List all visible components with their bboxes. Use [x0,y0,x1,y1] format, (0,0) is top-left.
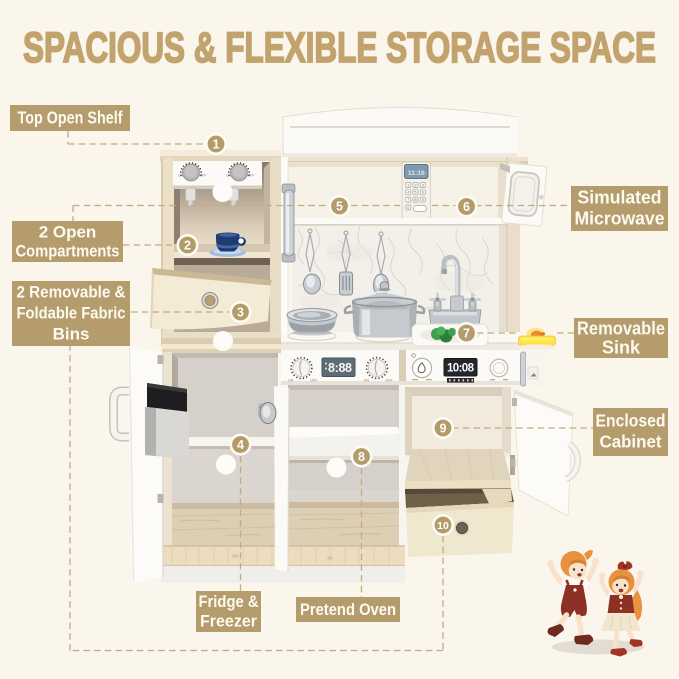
svg-text:SPACIOUS & FLEXIBLE STORAGE SP: SPACIOUS & FLEXIBLE STORAGE SPACE [23,24,656,72]
svg-text:Top Open Shelf: Top Open Shelf [18,108,123,128]
svg-text:8:88: 8:88 [328,361,352,375]
svg-text:6: 6 [463,200,470,214]
svg-text:4: 4 [237,438,244,452]
svg-text:11:16: 11:16 [408,170,425,177]
svg-text:10:08: 10:08 [447,363,475,375]
svg-text:Bins: Bins [53,325,90,344]
svg-text:3: 3 [237,306,244,320]
svg-text:OFF: OFF [386,379,394,383]
svg-text:5: 5 [336,200,343,214]
svg-text:Sink: Sink [602,338,641,358]
svg-text:2 Open: 2 Open [39,223,97,242]
svg-text:10: 10 [437,520,449,532]
svg-text:9: 9 [440,422,447,436]
svg-text:Freezer: Freezer [200,613,258,631]
svg-text:Fridge &: Fridge & [199,593,259,611]
svg-text:8: 8 [358,450,365,464]
svg-text:ON: ON [288,379,294,383]
svg-text:Compartments: Compartments [16,242,120,261]
svg-text:Microwave: Microwave [575,209,665,229]
svg-text:2 Removable &: 2 Removable & [17,283,126,302]
svg-text:Foldable Fabric: Foldable Fabric [17,304,126,323]
svg-text:ON: ON [178,174,184,178]
svg-text:ON: ON [226,174,232,178]
svg-text:7: 7 [463,327,470,341]
svg-text:ON: ON [364,379,370,383]
svg-text:Removable: Removable [577,319,665,339]
svg-text:1: 1 [213,138,220,152]
svg-text:Pretend Oven: Pretend Oven [300,601,396,619]
svg-text:Enclosed: Enclosed [596,411,666,431]
svg-text:OFF: OFF [310,379,318,383]
svg-text:OFF: OFF [248,174,255,178]
svg-text:Cabinet: Cabinet [600,432,662,452]
svg-text:OFF: OFF [200,174,207,178]
svg-text:Simulated: Simulated [578,188,662,208]
svg-text:2: 2 [184,239,191,253]
